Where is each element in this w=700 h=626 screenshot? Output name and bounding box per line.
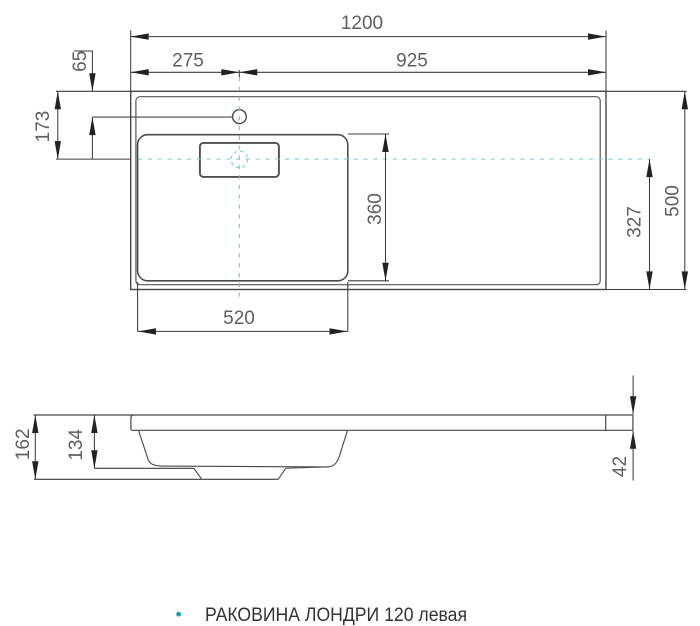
- svg-text:275: 275: [172, 51, 204, 72]
- svg-text:520: 520: [223, 308, 255, 329]
- svg-text:360: 360: [365, 193, 386, 225]
- svg-text:1200: 1200: [341, 13, 383, 34]
- svg-text:134: 134: [66, 429, 87, 461]
- svg-text:327: 327: [625, 206, 646, 238]
- svg-text:РАКОВИНА ЛОНДРИ 120 левая: РАКОВИНА ЛОНДРИ 120 левая: [205, 605, 467, 626]
- svg-text:500: 500: [663, 185, 684, 217]
- svg-text:925: 925: [396, 51, 428, 72]
- svg-text:173: 173: [33, 111, 54, 143]
- svg-text:162: 162: [13, 428, 34, 460]
- svg-text:65: 65: [70, 51, 91, 72]
- svg-text:42: 42: [610, 456, 631, 477]
